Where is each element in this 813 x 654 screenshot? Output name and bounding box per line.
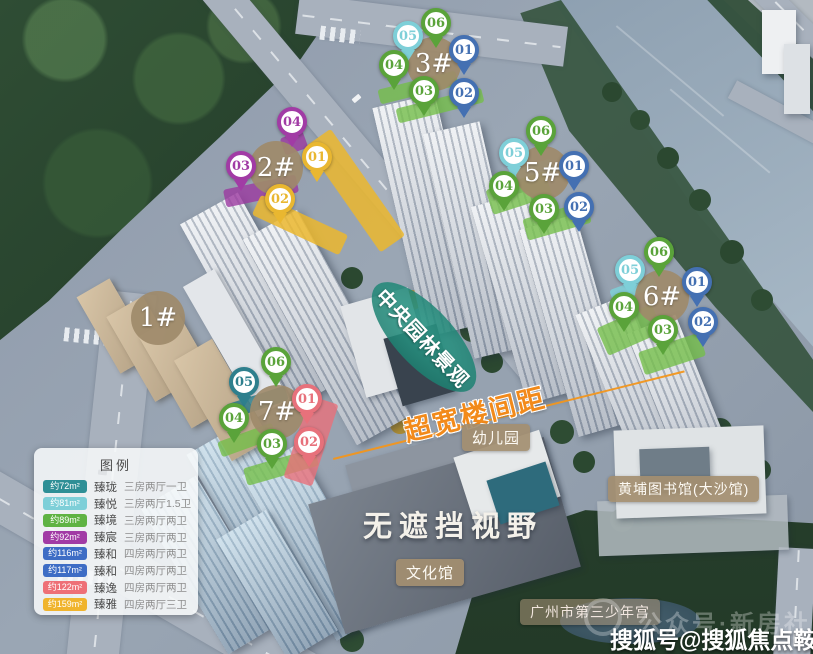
- pin-tail: [652, 266, 666, 277]
- pin-number: 04: [379, 50, 409, 80]
- unit-pin-5-02: 02: [564, 192, 594, 234]
- legend-product-name: 臻逸: [94, 580, 117, 596]
- unit-pin-6-06: 06: [644, 237, 674, 279]
- pin-tail: [269, 376, 283, 387]
- pin-tail: [429, 37, 443, 48]
- pin-tail: [537, 223, 551, 234]
- unit-pin-3-06: 06: [421, 8, 451, 50]
- pin-tail: [265, 458, 279, 469]
- pin-tail: [617, 321, 631, 332]
- unit-pin-3-04: 04: [379, 50, 409, 92]
- unit-pin-6-01: 01: [682, 267, 712, 309]
- unit-pin-5-01: 01: [559, 151, 589, 193]
- unit-pin-6-04: 04: [609, 292, 639, 334]
- watermark-bold: 搜狐号@搜狐焦点鞍山站: [610, 621, 813, 654]
- legend-title: 图例: [43, 455, 189, 474]
- pin-number: 02: [688, 307, 718, 337]
- legend-product-name: 臻悦: [94, 496, 117, 512]
- legend-area-chip: 约92m²: [43, 531, 87, 544]
- pin-tail: [567, 180, 581, 191]
- pin-number: 06: [644, 237, 674, 267]
- unit-pin-5-04: 04: [489, 171, 519, 213]
- legend-product-name: 臻珑: [94, 479, 117, 495]
- unit-pin-7-04: 04: [219, 403, 249, 445]
- unit-pin-2-03: 03: [226, 151, 256, 193]
- pin-number: 06: [526, 116, 556, 146]
- pin-number: 06: [261, 347, 291, 377]
- pin-tail: [227, 432, 241, 443]
- legend-layout: 三房两厅两卫: [124, 530, 187, 545]
- pin-number: 05: [393, 21, 423, 51]
- pin-number: 01: [449, 35, 479, 65]
- pin-number: 03: [648, 315, 678, 345]
- building-badge-1: 1#: [131, 291, 185, 345]
- pin-number: 02: [449, 78, 479, 108]
- pin-tail: [457, 64, 471, 75]
- unit-pin-7-06: 06: [261, 347, 291, 389]
- unit-pin-6-02: 02: [688, 307, 718, 349]
- unit-pin-7-03: 03: [257, 429, 287, 471]
- pin-tail: [696, 336, 710, 347]
- legend-layout: 四房两厅三卫: [124, 597, 187, 612]
- unit-pin-6-03: 03: [648, 315, 678, 357]
- unit-pin-5-06: 06: [526, 116, 556, 158]
- pin-tail: [387, 79, 401, 90]
- legend-layout: 四房两厅两卫: [124, 546, 187, 561]
- legend-layout: 三房两厅两卫: [124, 513, 187, 528]
- pin-number: 01: [682, 267, 712, 297]
- legend-layout: 三房两厅1.5卫: [124, 496, 191, 511]
- pin-number: 01: [292, 384, 322, 414]
- pin-number: 01: [559, 151, 589, 181]
- pin-tail: [656, 344, 670, 355]
- legend-area-chip: 约117m²: [43, 564, 87, 577]
- pin-tail: [300, 413, 314, 424]
- legend-panel: 图例 约72m²臻珑三房两厅一卫约81m²臻悦三房两厅1.5卫约89m²臻境三房…: [34, 448, 198, 615]
- legend-area-chip: 约159m²: [43, 598, 87, 611]
- legend-layout: 三房两厅一卫: [124, 479, 187, 494]
- legend-area-chip: 约89m²: [43, 514, 87, 527]
- pin-number: 03: [409, 76, 439, 106]
- unit-pin-3-02: 02: [449, 78, 479, 120]
- pin-tail: [572, 221, 586, 232]
- unit-pin-7-02: 02: [294, 427, 324, 469]
- pin-number: 06: [421, 8, 451, 38]
- legend-product-name: 臻雅: [94, 596, 117, 612]
- unit-pin-2-02: 02: [265, 184, 295, 226]
- pin-number: 05: [229, 367, 259, 397]
- pin-tail: [534, 145, 548, 156]
- unit-pin-5-03: 03: [529, 194, 559, 236]
- pin-number: 05: [499, 138, 529, 168]
- pin-number: 04: [277, 107, 307, 137]
- pin-number: 03: [529, 194, 559, 224]
- pin-tail: [457, 107, 471, 118]
- pin-number: 02: [294, 427, 324, 457]
- unit-pin-2-01: 01: [302, 142, 332, 184]
- legend-row: 约159m²臻雅四房两厅三卫: [43, 598, 189, 612]
- legend-product-name: 臻和: [94, 546, 117, 562]
- pin-number: 03: [226, 151, 256, 181]
- unit-pin-3-01: 01: [449, 35, 479, 77]
- legend-row: 约92m²臻宸三房两厅两卫: [43, 530, 189, 544]
- pin-tail: [690, 296, 704, 307]
- pin-number: 02: [564, 192, 594, 222]
- legend-area-chip: 约81m²: [43, 497, 87, 510]
- pin-number: 04: [219, 403, 249, 433]
- pin-tail: [302, 456, 316, 467]
- pin-tail: [417, 105, 431, 116]
- legend-product-name: 臻宸: [94, 529, 117, 545]
- site-plan-image: 中央园林景观 超宽楼间距 无遮挡视野 幼儿园 文化馆 黄埔图书馆(大沙馆) 广州…: [0, 0, 813, 654]
- unit-pin-7-01: 01: [292, 384, 322, 426]
- pin-number: 02: [265, 184, 295, 214]
- legend-row: 约89m²臻境三房两厅两卫: [43, 514, 189, 528]
- unit-pin-3-03: 03: [409, 76, 439, 118]
- pin-number: 01: [302, 142, 332, 172]
- legend-layout: 四房两厅两卫: [124, 580, 187, 595]
- legend-area-chip: 约116m²: [43, 547, 87, 560]
- pin-tail: [234, 180, 248, 191]
- legend-row: 约72m²臻珑三房两厅一卫: [43, 480, 189, 494]
- legend-row: 约81m²臻悦三房两厅1.5卫: [43, 497, 189, 511]
- legend-area-chip: 约72m²: [43, 480, 87, 493]
- pin-tail: [310, 171, 324, 182]
- pin-number: 04: [609, 292, 639, 322]
- legend-product-name: 臻和: [94, 563, 117, 579]
- pin-number: 03: [257, 429, 287, 459]
- pin-tail: [285, 136, 299, 147]
- pin-tail: [497, 200, 511, 211]
- legend-row: 约122m²臻逸四房两厅两卫: [43, 581, 189, 595]
- unit-pin-6-05: 05: [615, 255, 645, 297]
- legend-layout: 四房两厅两卫: [124, 563, 187, 578]
- pin-number: 04: [489, 171, 519, 201]
- legend-row: 约117m²臻和四房两厅两卫: [43, 564, 189, 578]
- legend-product-name: 臻境: [94, 512, 117, 528]
- legend-row: 约116m²臻和四房两厅两卫: [43, 547, 189, 561]
- pin-tail: [273, 213, 287, 224]
- pin-number: 05: [615, 255, 645, 285]
- legend-rows: 约72m²臻珑三房两厅一卫约81m²臻悦三房两厅1.5卫约89m²臻境三房两厅两…: [43, 480, 189, 611]
- legend-area-chip: 约122m²: [43, 581, 87, 594]
